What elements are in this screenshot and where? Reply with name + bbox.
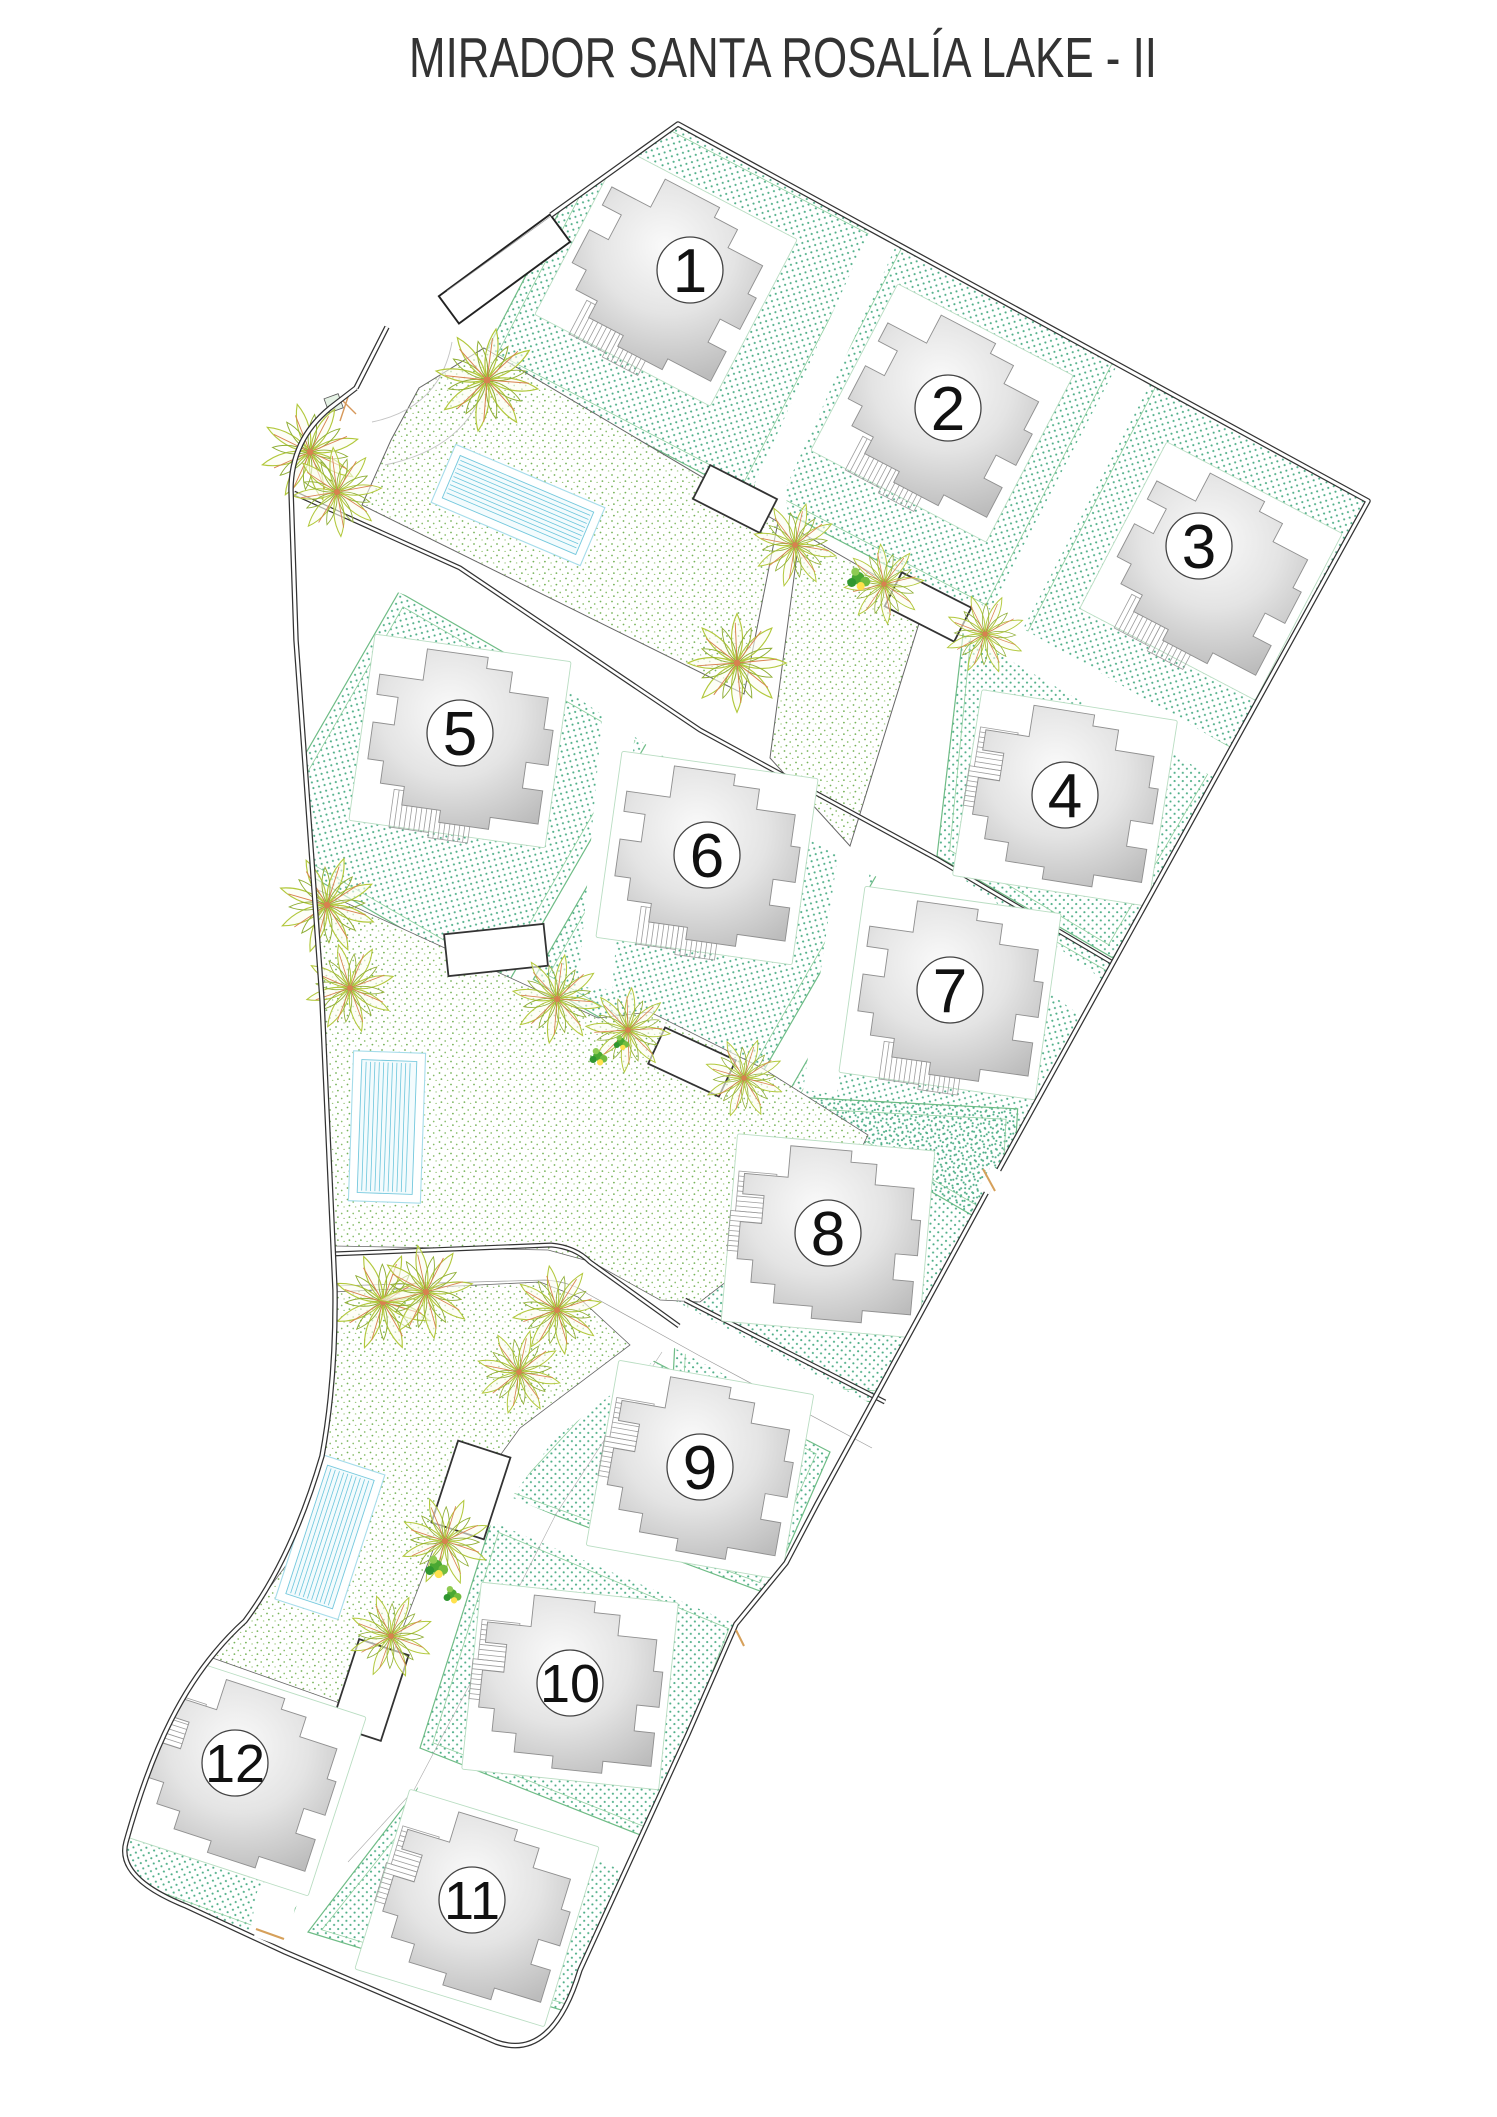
svg-text:1: 1: [673, 237, 707, 306]
svg-text:10: 10: [540, 1654, 600, 1714]
svg-text:3: 3: [1182, 513, 1216, 582]
svg-text:4: 4: [1048, 762, 1082, 831]
svg-text:MIRADOR SANTA ROSALÍA LAKE - I: MIRADOR SANTA ROSALÍA LAKE - II: [409, 26, 1157, 90]
svg-text:2: 2: [931, 375, 965, 444]
svg-text:6: 6: [690, 822, 724, 891]
svg-text:12: 12: [205, 1734, 265, 1794]
svg-text:5: 5: [443, 700, 477, 769]
svg-text:9: 9: [683, 1434, 717, 1503]
svg-text:8: 8: [811, 1200, 845, 1269]
svg-text:11: 11: [444, 1871, 500, 1931]
svg-text:7: 7: [933, 957, 967, 1026]
